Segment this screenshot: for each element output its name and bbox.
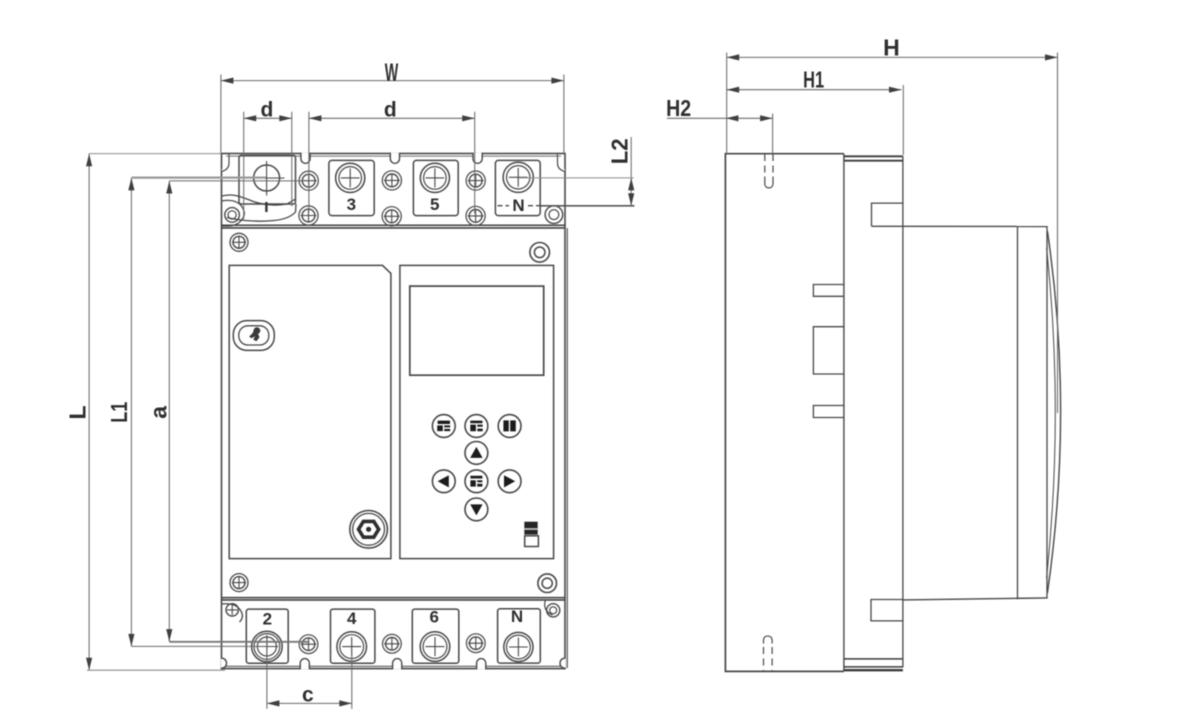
svg-text:d: d (384, 99, 397, 122)
svg-text:H1: H1 (803, 67, 824, 93)
svg-text:H2: H2 (666, 95, 691, 121)
svg-text:3: 3 (347, 195, 356, 214)
svg-text:W: W (385, 59, 399, 87)
svg-text:N: N (511, 607, 523, 626)
svg-text:4: 4 (347, 609, 357, 628)
svg-text:c: c (302, 684, 314, 707)
svg-text:N: N (512, 196, 524, 215)
svg-text:L1: L1 (106, 402, 132, 423)
svg-text:a: a (146, 406, 172, 419)
svg-text:5: 5 (430, 195, 439, 214)
svg-text:6: 6 (429, 608, 438, 627)
svg-text:2: 2 (263, 609, 272, 628)
svg-text:H: H (883, 35, 900, 61)
svg-text:L2: L2 (607, 138, 633, 164)
svg-text:d: d (260, 99, 273, 122)
svg-text:L: L (65, 405, 91, 419)
